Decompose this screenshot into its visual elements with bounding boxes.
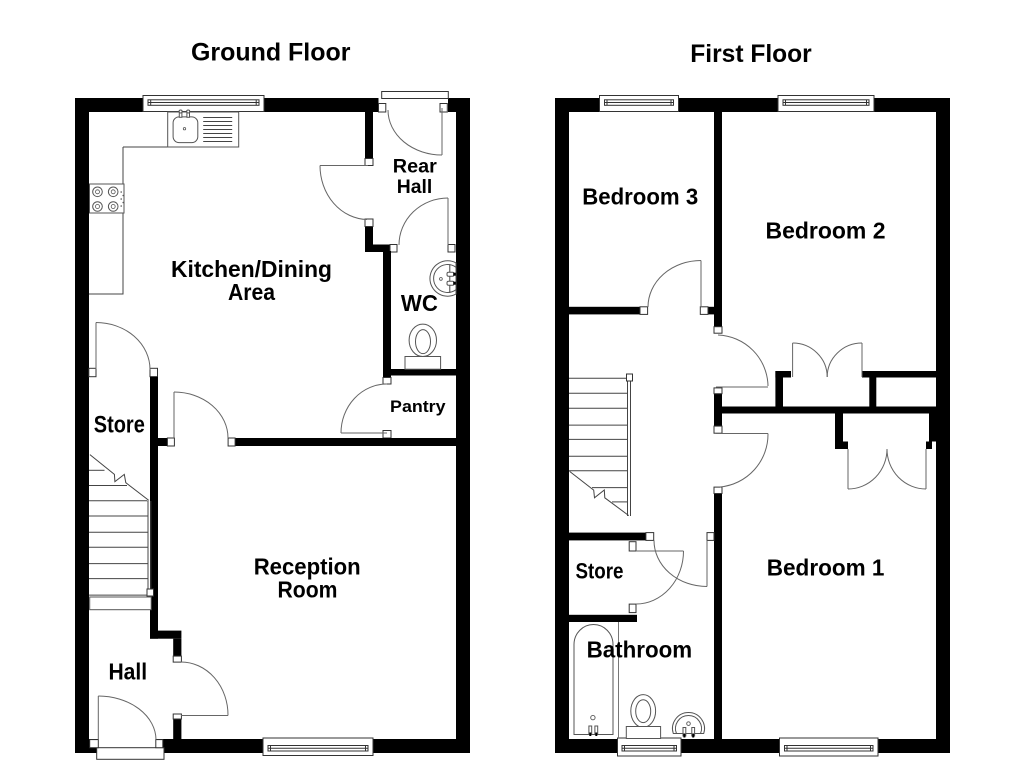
svg-text:Store: Store [576, 559, 624, 584]
svg-text:Ground Floor: Ground Floor [191, 39, 351, 67]
svg-text:Bathroom: Bathroom [587, 637, 693, 663]
svg-text:Bedroom 3: Bedroom 3 [582, 183, 698, 209]
svg-text:Hall: Hall [397, 176, 433, 198]
svg-text:Bedroom 1: Bedroom 1 [767, 554, 885, 580]
svg-text:Area: Area [228, 279, 275, 305]
svg-text:Store: Store [94, 412, 145, 439]
svg-text:First Floor: First Floor [690, 40, 812, 68]
svg-text:Rear: Rear [393, 156, 437, 178]
svg-text:WC: WC [401, 290, 438, 316]
svg-text:Bedroom 2: Bedroom 2 [766, 218, 886, 244]
svg-text:Room: Room [278, 576, 338, 602]
svg-text:Pantry: Pantry [390, 397, 446, 416]
svg-text:Hall: Hall [108, 659, 147, 685]
